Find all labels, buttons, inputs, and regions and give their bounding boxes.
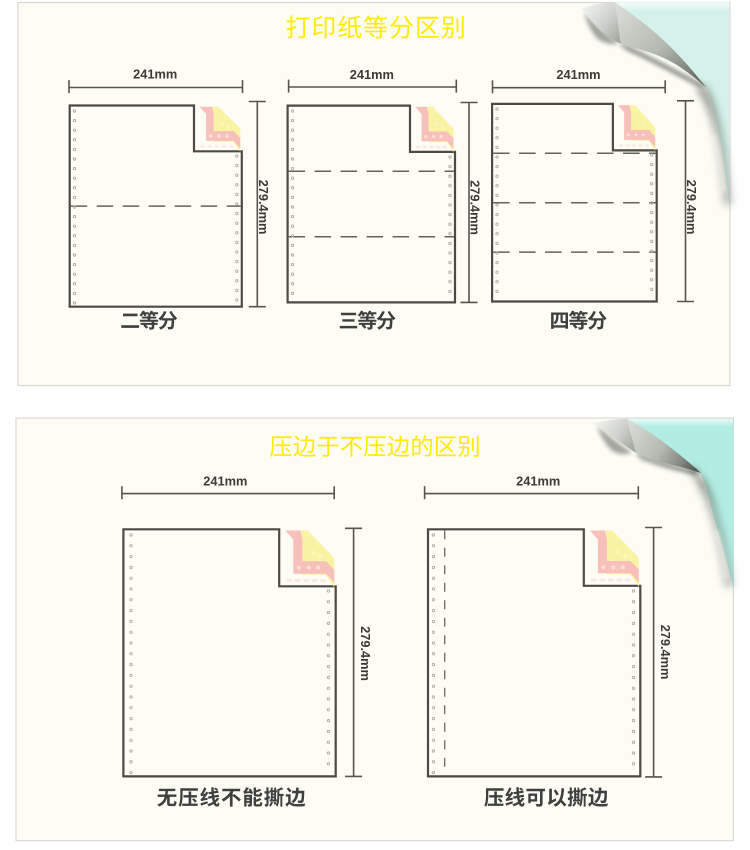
svg-text:241mm: 241mm — [556, 67, 600, 82]
svg-text:241mm: 241mm — [516, 474, 560, 489]
svg-text:241mm: 241mm — [133, 66, 177, 81]
svg-text:279.4mm: 279.4mm — [358, 626, 373, 681]
svg-text:279.4mm: 279.4mm — [256, 180, 271, 235]
svg-text:279.4mm: 279.4mm — [467, 180, 482, 235]
svg-text:279.4mm: 279.4mm — [684, 180, 699, 235]
svg-text:241mm: 241mm — [350, 67, 394, 82]
svg-text:241mm: 241mm — [203, 473, 247, 488]
svg-text:279.4mm: 279.4mm — [658, 625, 673, 680]
